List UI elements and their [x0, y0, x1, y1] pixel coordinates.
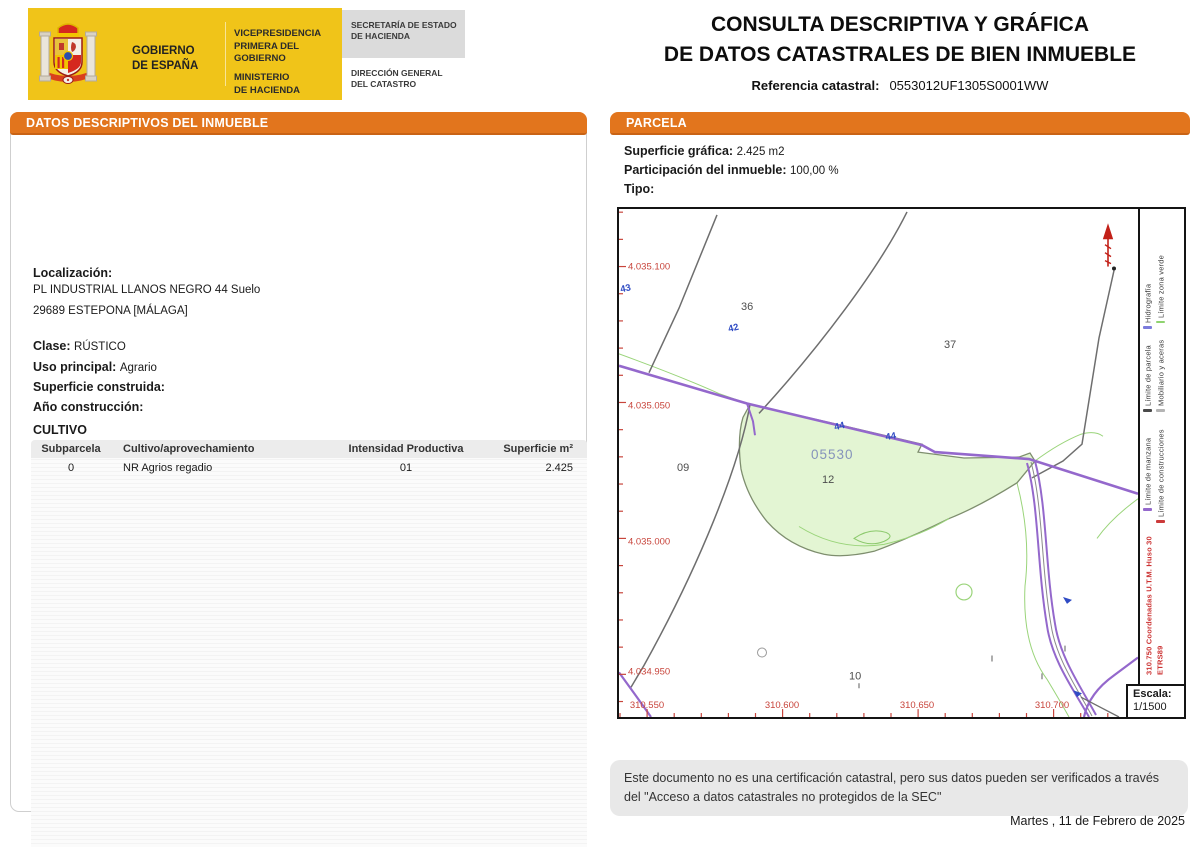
legend-swatch-zona-verde	[1157, 321, 1166, 324]
north-arrow-icon	[1104, 225, 1113, 267]
localizacion-label: Localización:	[33, 266, 112, 280]
cell-cultivo: NR Agrios regadio	[111, 462, 321, 474]
map-drawing: 4.035.100 4.035.050 4.035.000 4.034.950 …	[619, 209, 1138, 717]
cultivo-section-title: CULTIVO	[33, 423, 87, 437]
scale-box: Escala: 1/1500	[1126, 684, 1184, 717]
map-canvas[interactable]: 4.035.100 4.035.050 4.035.000 4.034.950 …	[619, 209, 1138, 717]
document-title: CONSULTA DESCRIPTIVA Y GRÁFICA DE DATOS …	[620, 10, 1180, 70]
col-subparcela: Subparcela	[31, 443, 111, 455]
parcela-header-bar: PARCELA	[610, 112, 1190, 135]
small-gray-circle	[758, 648, 767, 657]
utm-coordinates-note: 310.750 Coordenadas U.T.M. Huso 30 ETRS8…	[1148, 507, 1161, 675]
disclaimer-box: Este documento no es una certificación c…	[610, 760, 1188, 816]
cell-superficie: 2.425	[491, 462, 587, 474]
descriptive-data-header-bar: DATOS DESCRIPTIVOS DEL INMUEBLE	[10, 112, 587, 135]
x-axis-label: 310.600	[765, 700, 799, 711]
document-date: Martes , 11 de Febrero de 2025	[690, 814, 1185, 828]
parcel-number-36: 36	[741, 301, 753, 313]
col-superficie: Superficie m²	[491, 443, 587, 455]
legend-column-3: Límite de manzana	[1142, 422, 1154, 514]
legend-label-zona-verde: Límite zona verde	[1156, 255, 1167, 318]
cultivo-table-row: 0 NR Agrios regadio 01 2.425	[31, 458, 587, 477]
legend-label-hidrografia: Hidrografía	[1143, 284, 1154, 323]
escala-value: 1/1500	[1133, 701, 1184, 714]
direccion-catastro-text: DIRECCIÓN GENERAL DEL CATASTRO	[351, 68, 443, 90]
y-axis-label: 4.035.050	[628, 400, 670, 411]
cadastral-document: GOBIERNO DE ESPAÑA VICEPRESIDENCIA PRIME…	[0, 0, 1200, 847]
legend-column-2: Mobiliario y acerasLímite zona verde	[1155, 215, 1167, 415]
blue-point-label: 43	[619, 282, 632, 295]
legend-label-construcciones: Límite de construcciones	[1156, 429, 1167, 517]
parcela-title: PARCELA	[626, 116, 687, 130]
descriptive-data-title: DATOS DESCRIPTIVOS DEL INMUEBLE	[26, 116, 268, 130]
tipo-label: Tipo:	[624, 182, 654, 196]
descriptive-data-panel: DATOS DESCRIPTIVOS DEL INMUEBLE Localiza…	[10, 112, 587, 812]
secretaria-text: SECRETARÍA DE ESTADO DE HACIENDA	[351, 20, 457, 42]
uso-value: Agrario	[120, 362, 157, 374]
uso-label: Uso principal:	[33, 360, 116, 374]
disclaimer-text: Este documento no es una certificación c…	[624, 771, 1159, 804]
small-green-circle	[956, 584, 972, 600]
cell-subparcela: 0	[31, 462, 111, 474]
participacion-label: Participación del inmueble:	[624, 163, 787, 177]
blue-point-label: 42	[727, 322, 740, 335]
parcel-number-37: 37	[944, 339, 956, 351]
x-axis-label: 310.650	[900, 700, 934, 711]
logo-divider	[225, 22, 226, 86]
address-line1: PL INDUSTRIAL LLANOS NEGRO 44 Suelo	[33, 284, 260, 296]
superficie-grafica-label: Superficie gráfica:	[624, 144, 733, 158]
legend-label-limite-parcela: Límite de parcela	[1143, 346, 1154, 407]
cultivo-table-header-row: Subparcela Cultivo/aprovechamiento Inten…	[31, 440, 587, 458]
legend-swatch-limite-parcela	[1144, 410, 1153, 413]
parcel-number-10: 10	[849, 670, 861, 682]
y-axis-label: 4.035.000	[628, 536, 670, 547]
cell-intensidad: 01	[321, 462, 491, 474]
participacion-value: 100,00 %	[790, 165, 839, 177]
parcel-number-12: 12	[822, 474, 834, 486]
spain-coat-of-arms-icon	[38, 18, 98, 92]
col-intensidad: Intensidad Productiva	[321, 443, 491, 455]
x-axis-label: 310.550	[630, 700, 664, 711]
parcel-number-09: 09	[677, 462, 689, 474]
y-axis-label: 4.034.950	[628, 666, 670, 677]
clase-value: RÚSTICO	[74, 341, 126, 353]
cadastral-reference: Referencia catastral:0553012UF1305S0001W…	[620, 78, 1180, 93]
clase-label: Clase:	[33, 339, 71, 353]
document-title-line1: CONSULTA DESCRIPTIVA Y GRÁFICA	[620, 10, 1180, 40]
cadastral-map[interactable]: 4.035.100 4.035.050 4.035.000 4.034.950 …	[617, 207, 1186, 719]
blue-point-label: 44	[885, 430, 898, 443]
reference-label: Referencia catastral:	[752, 78, 880, 93]
superficie-construida-label: Superficie construida:	[33, 380, 165, 394]
reference-value: 0553012UF1305S0001WW	[889, 78, 1048, 93]
vicepresidencia-text: VICEPRESIDENCIA PRIMERA DEL GOBIERNO	[234, 28, 342, 66]
superficie-grafica-value: 2.425 m2	[737, 146, 785, 158]
document-title-line2: DE DATOS CATASTRALES DE BIEN INMUEBLE	[620, 40, 1180, 70]
blue-arrow-mark	[1063, 597, 1072, 604]
gobierno-text-line2: DE ESPAÑA	[132, 59, 198, 74]
cultivo-table: Subparcela Cultivo/aprovechamiento Inten…	[31, 440, 587, 847]
legend-swatch-mobiliario	[1157, 410, 1166, 413]
government-logo-block: GOBIERNO DE ESPAÑA VICEPRESIDENCIA PRIME…	[28, 8, 342, 100]
anio-construccion-label: Año construcción:	[33, 400, 143, 414]
legend-label-manzana: Límite de manzana	[1143, 438, 1154, 505]
x-axis-label: 310.700	[1035, 700, 1069, 711]
escala-label: Escala:	[1133, 688, 1184, 701]
legend-column-1: Límite de parcelaHidrografía	[1142, 215, 1154, 415]
address-line2: 29689 ESTEPONA [MÁLAGA]	[33, 305, 188, 317]
legend-swatch-hidrografia	[1144, 326, 1153, 329]
y-axis-label: 4.035.100	[628, 262, 670, 273]
legend-label-mobiliario: Mobiliario y aceras	[1156, 340, 1167, 406]
map-legend: Límite de parcelaHidrografía Mobiliario …	[1138, 209, 1184, 684]
gobierno-text-line1: GOBIERNO	[132, 44, 198, 59]
col-cultivo: Cultivo/aprovechamiento	[111, 443, 321, 455]
ministerio-text: MINISTERIO DE HACIENDA	[234, 72, 300, 97]
highlight-parcel-code: 05530	[811, 447, 854, 462]
